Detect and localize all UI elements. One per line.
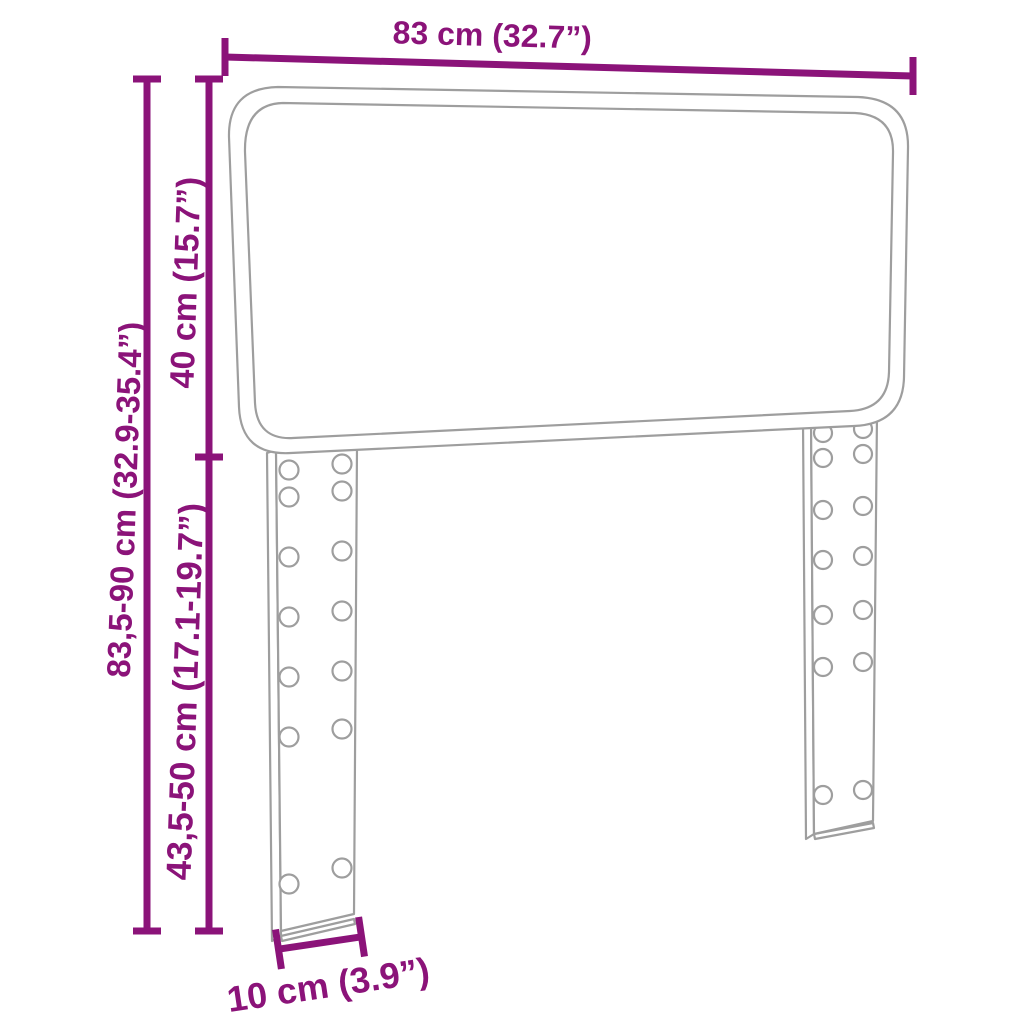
dimension-leg-height-label: 43,5-50 cm (17.1-19.7”) bbox=[159, 502, 211, 881]
dimension-height-segments: 40 cm (15.7”) 43,5-50 cm (17.1-19.7”) bbox=[159, 79, 223, 931]
dimension-width-label: 83 cm (32.7”) bbox=[392, 14, 592, 56]
leg-hole bbox=[280, 668, 299, 687]
leg-hole bbox=[814, 449, 832, 467]
right-leg bbox=[803, 414, 877, 839]
leg-hole bbox=[280, 608, 299, 627]
leg-hole bbox=[333, 720, 352, 739]
leg-hole bbox=[814, 551, 832, 569]
headboard-panel-outer-edge bbox=[229, 87, 908, 453]
leg-hole bbox=[814, 786, 832, 804]
leg-hole bbox=[854, 653, 872, 671]
dimension-total-height-label: 83,5-90 cm (32.9-35.4”) bbox=[100, 321, 149, 678]
dimension-panel-height-label: 40 cm (15.7”) bbox=[163, 176, 208, 389]
left-leg bbox=[267, 446, 357, 941]
leg-hole bbox=[333, 859, 352, 878]
leg-hole bbox=[333, 602, 352, 621]
leg-hole bbox=[333, 482, 352, 501]
leg-hole bbox=[854, 445, 872, 463]
leg-hole bbox=[814, 606, 832, 624]
dimension-total-height: 83,5-90 cm (32.9-35.4”) bbox=[100, 79, 161, 931]
leg-hole bbox=[280, 461, 299, 480]
leg-hole bbox=[333, 542, 352, 561]
leg-hole bbox=[280, 548, 299, 567]
leg-hole bbox=[854, 497, 872, 515]
dimension-line bbox=[225, 57, 913, 76]
leg-hole bbox=[333, 662, 352, 681]
headboard-diagram-svg: 83 cm (32.7”) 83,5-90 cm (32.9-35.4”) 40… bbox=[0, 0, 1024, 1024]
leg-hole bbox=[814, 501, 832, 519]
leg-hole bbox=[814, 658, 832, 676]
leg-hole bbox=[854, 601, 872, 619]
headboard-panel bbox=[229, 87, 908, 453]
leg-hole bbox=[280, 728, 299, 747]
dimension-diagram: 83 cm (32.7”) 83,5-90 cm (32.9-35.4”) 40… bbox=[0, 0, 1024, 1024]
leg-hole bbox=[280, 488, 299, 507]
leg-hole bbox=[854, 781, 872, 799]
leg-hole bbox=[854, 547, 872, 565]
dimension-leg-width-label: 10 cm (3.9”) bbox=[224, 949, 432, 1020]
dimension-width: 83 cm (32.7”) bbox=[225, 14, 913, 95]
leg-hole bbox=[280, 875, 299, 894]
leg-hole bbox=[333, 455, 352, 474]
